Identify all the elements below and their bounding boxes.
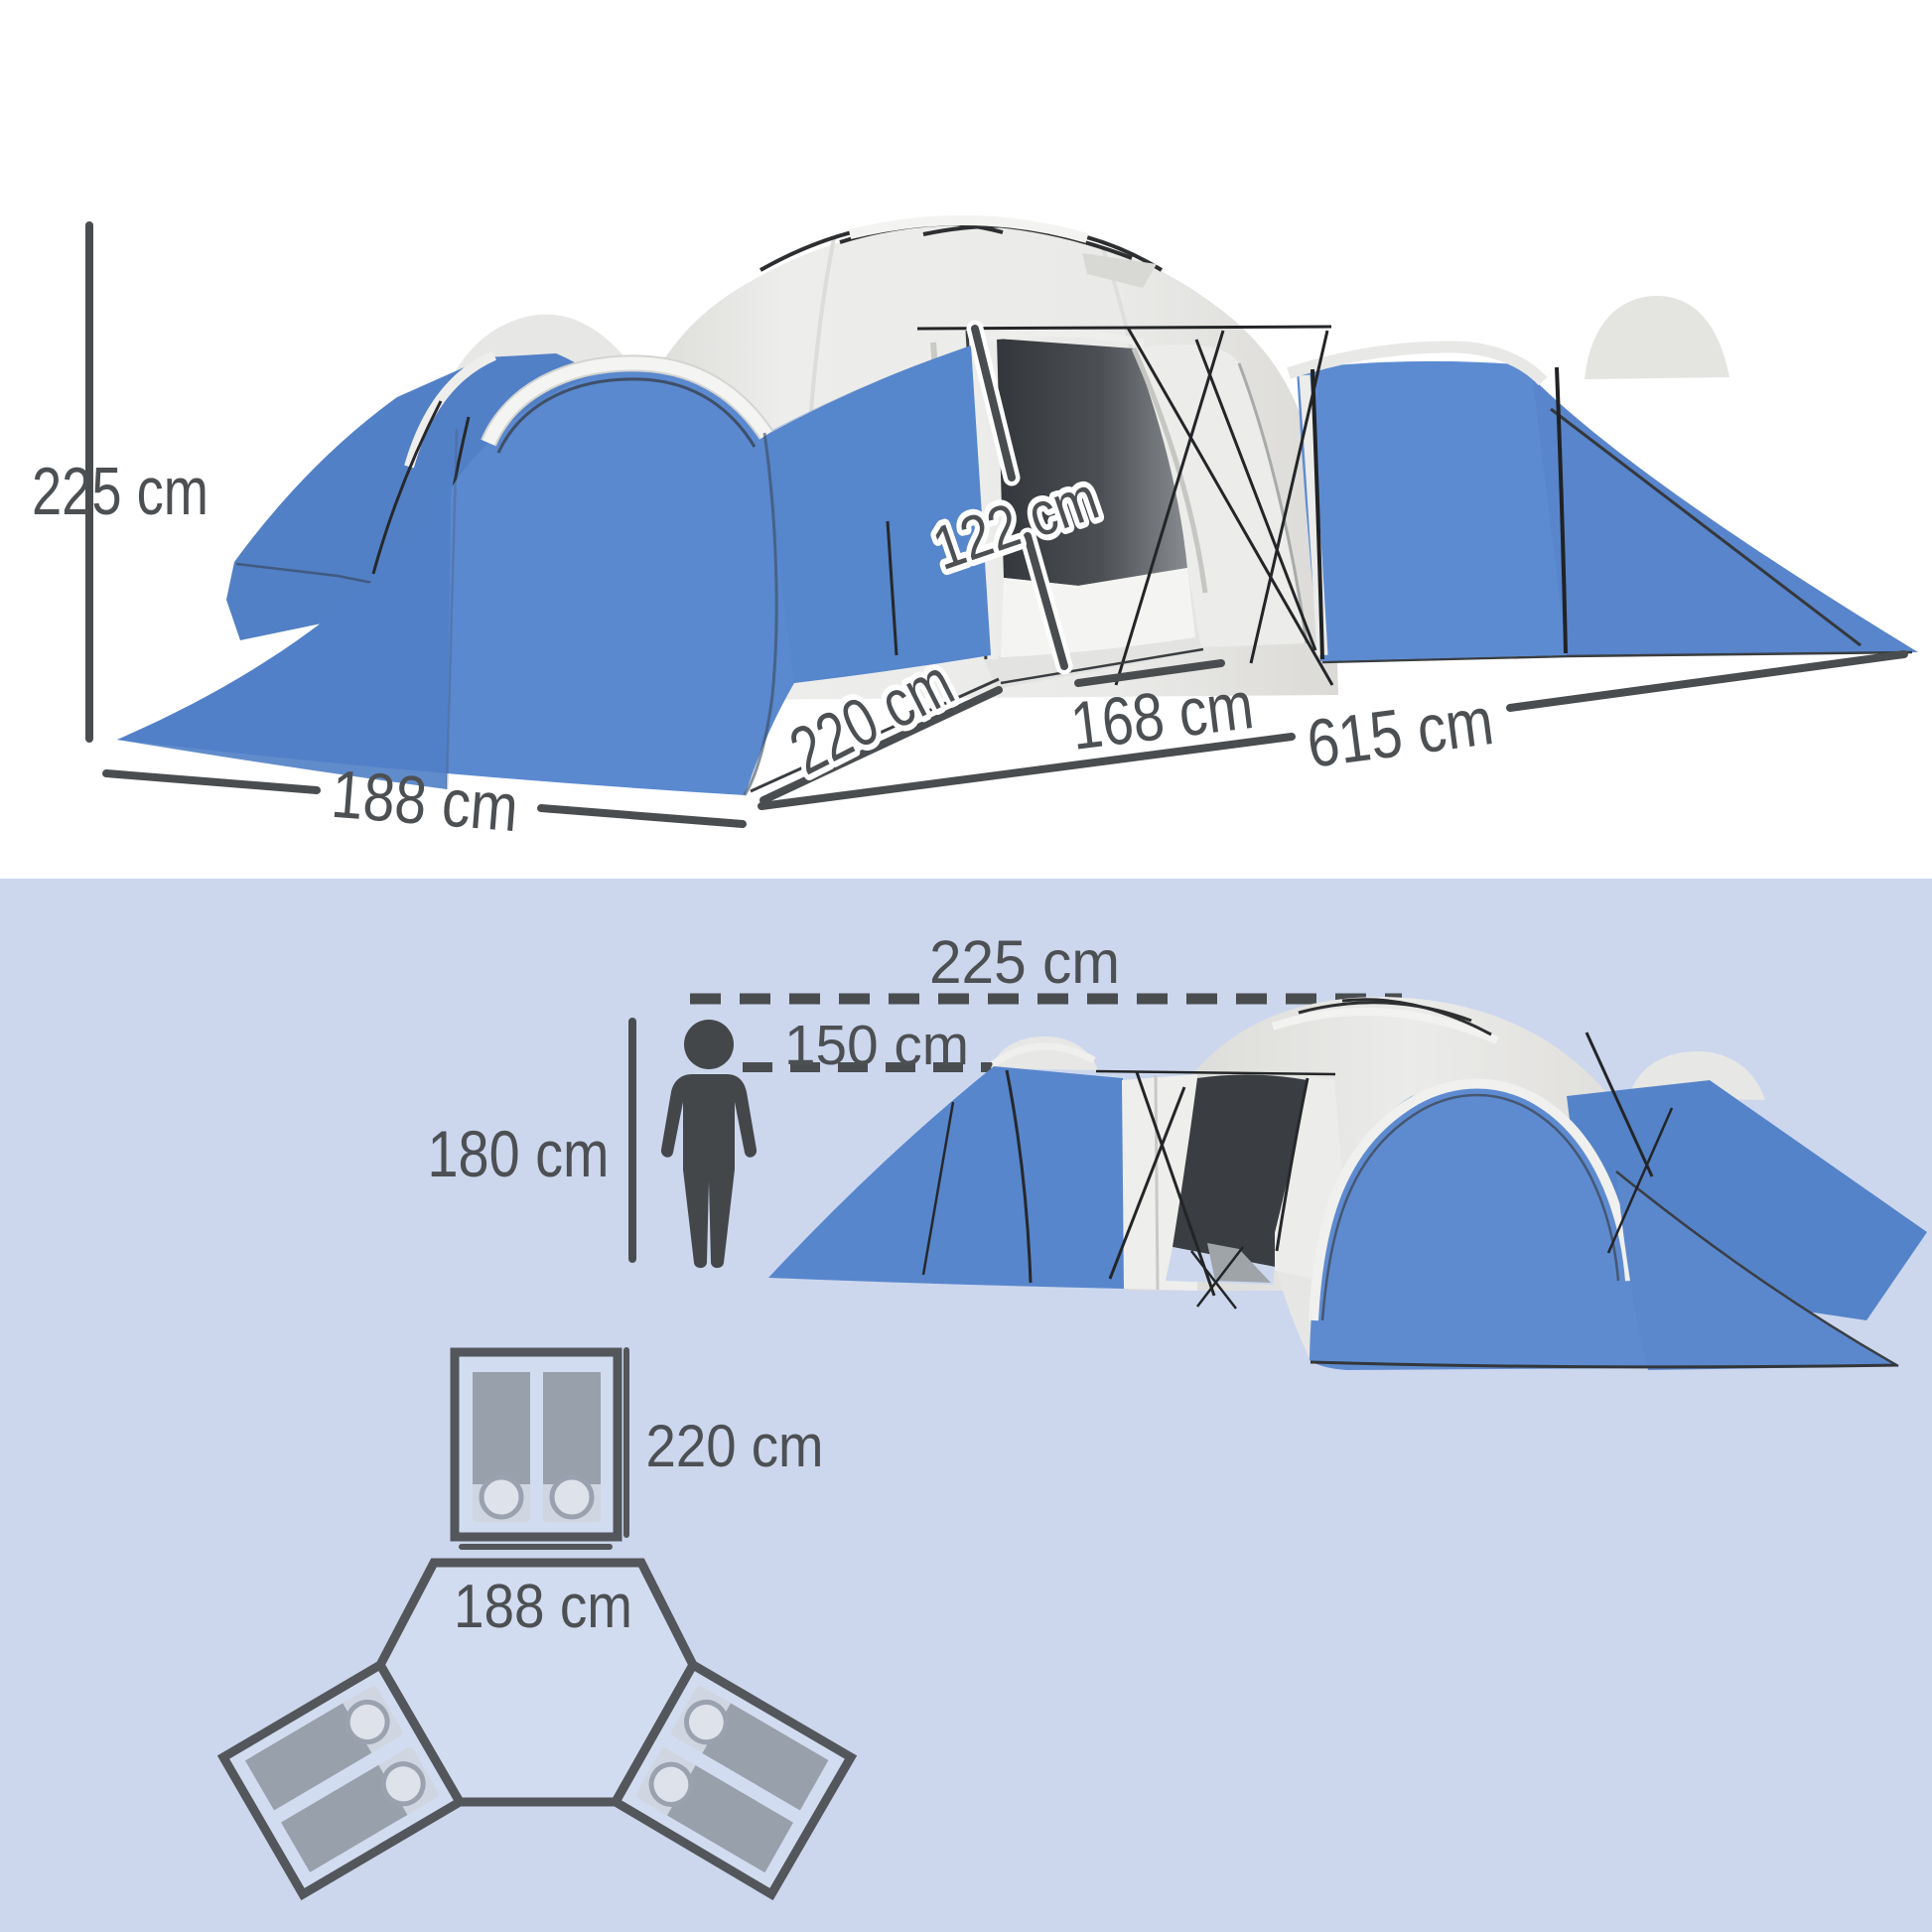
svg-text:150 cm: 150 cm xyxy=(784,1014,969,1077)
svg-text:225 cm: 225 cm xyxy=(32,454,208,529)
svg-text:225 cm: 225 cm xyxy=(929,928,1120,996)
svg-text:188 cm: 188 cm xyxy=(454,1573,632,1641)
svg-text:180 cm: 180 cm xyxy=(428,1117,610,1190)
svg-text:188 cm: 188 cm xyxy=(329,757,520,847)
svg-text:220 cm: 220 cm xyxy=(646,1413,824,1479)
